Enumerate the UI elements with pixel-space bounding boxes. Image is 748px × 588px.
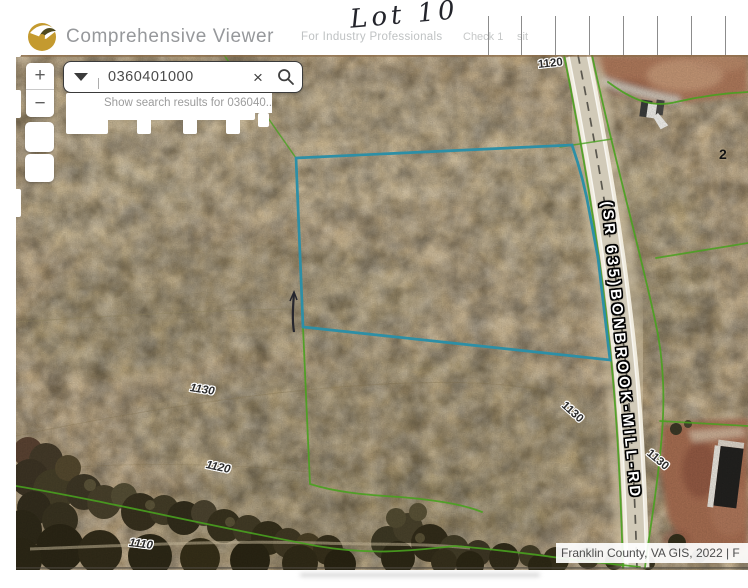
zoom-control: + −: [26, 63, 54, 117]
whiteout-button: [25, 154, 54, 182]
scan-tick-mark: [657, 16, 658, 55]
chevron-down-icon: [74, 73, 88, 81]
map-attribution: Franklin County, VA GIS, 2022 | F: [556, 543, 748, 563]
search-input[interactable]: 0360401000: [99, 69, 246, 85]
whiteout-button: [25, 122, 54, 152]
whiteout-mark: [12, 90, 21, 118]
header-faint-text-right: sit: [517, 31, 528, 43]
scanned-page: (SR 635)BONBROOK-MILL-RD 1120 1130 1120 …: [0, 0, 748, 588]
whiteout-mark: [183, 118, 197, 134]
scan-tick-mark: [725, 16, 726, 55]
whiteout-mark: [226, 118, 240, 134]
zoom-in-button[interactable]: +: [26, 63, 54, 90]
header-faint-text-left: Check 1: [463, 31, 503, 43]
parcel-number-partial: 2: [719, 146, 727, 162]
scan-tick-mark: [488, 16, 489, 55]
whiteout-mark: [12, 45, 21, 57]
scan-tick-mark: [589, 16, 590, 55]
scan-tick-mark: [555, 16, 556, 55]
scan-tick-mark: [691, 16, 692, 55]
whiteout-mark: [258, 113, 269, 127]
search-dropdown-toggle[interactable]: [64, 62, 98, 92]
search-suggestion[interactable]: Show search results for 036040...: [97, 93, 272, 113]
search-button[interactable]: [270, 68, 302, 86]
app-logo-icon: [24, 19, 60, 55]
zoom-out-button[interactable]: −: [26, 90, 54, 117]
whiteout-mark: [12, 189, 21, 217]
scan-smudge: [300, 573, 540, 577]
scan-tick-mark: [623, 16, 624, 55]
app-title: Comprehensive Viewer: [66, 26, 274, 48]
search-icon: [277, 68, 295, 86]
clear-icon[interactable]: ×: [246, 69, 270, 86]
scan-tick-mark: [521, 16, 522, 55]
whiteout-mark: [91, 118, 108, 134]
whiteout-mark: [137, 118, 151, 134]
search-bar[interactable]: 0360401000 ×: [63, 61, 303, 93]
